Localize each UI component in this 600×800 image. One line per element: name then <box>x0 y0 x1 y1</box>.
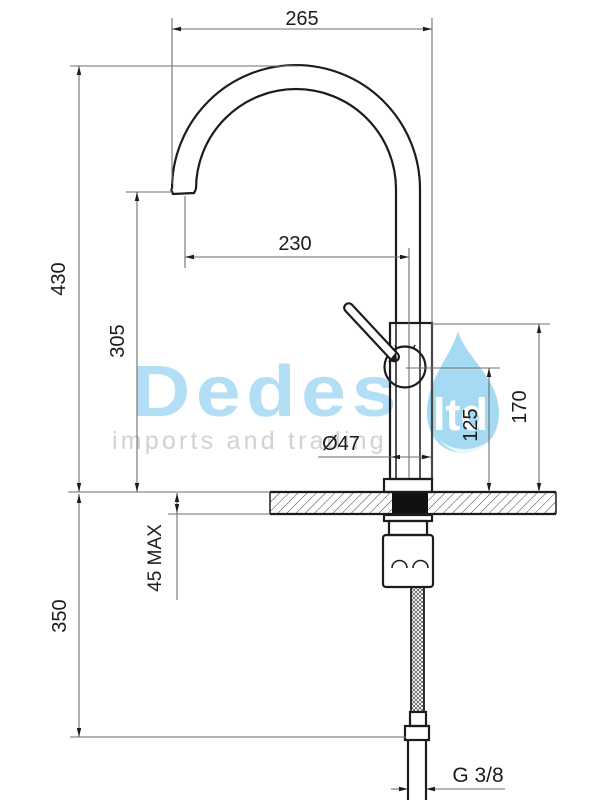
under-counter-fixing <box>383 515 433 800</box>
stud-arc-right <box>413 561 428 569</box>
dim-265-label: 265 <box>285 8 318 30</box>
dim-230-label: 230 <box>278 233 311 255</box>
spout-outer-arc <box>172 65 420 323</box>
spout-inner-arc <box>196 89 396 323</box>
dim-350-label: 350 <box>49 599 71 632</box>
stud-arc-left <box>392 561 407 569</box>
hose-ferrule <box>410 712 426 726</box>
fixing-nut <box>383 535 433 587</box>
dim-170-label: 170 <box>509 390 531 423</box>
dim-thread-label: G 3/8 <box>452 764 503 787</box>
faucet-outline <box>171 65 432 492</box>
spout-outlet <box>171 189 196 194</box>
base-flange <box>384 479 432 492</box>
dim-170: 170 <box>432 324 550 492</box>
technical-drawing-page: Dedes ltd imports and trading <box>0 0 600 800</box>
dim-diameter-47-label: Ø47 <box>322 433 360 455</box>
dim-125-label: 125 <box>460 408 482 441</box>
dim-45-max: 45 MAX <box>145 493 270 600</box>
braided-hose <box>411 587 424 712</box>
hose-nut-cap <box>405 726 429 740</box>
dim-350: 350 <box>49 494 406 737</box>
dim-430-label: 430 <box>48 262 70 295</box>
handle-lever <box>342 301 400 363</box>
fixing-neck <box>389 521 427 535</box>
dim-305: 305 <box>107 192 172 492</box>
dim-diameter-47: Ø47 <box>318 433 431 459</box>
dim-430: 430 <box>48 66 298 492</box>
mounting-seal <box>392 491 428 515</box>
dim-305-label: 305 <box>107 324 129 357</box>
drawing-linework: 265 430 305 230 <box>0 0 600 800</box>
dim-45-max-label: 45 MAX <box>145 524 166 592</box>
dim-230: 230 <box>185 196 409 268</box>
countertop <box>270 491 556 515</box>
